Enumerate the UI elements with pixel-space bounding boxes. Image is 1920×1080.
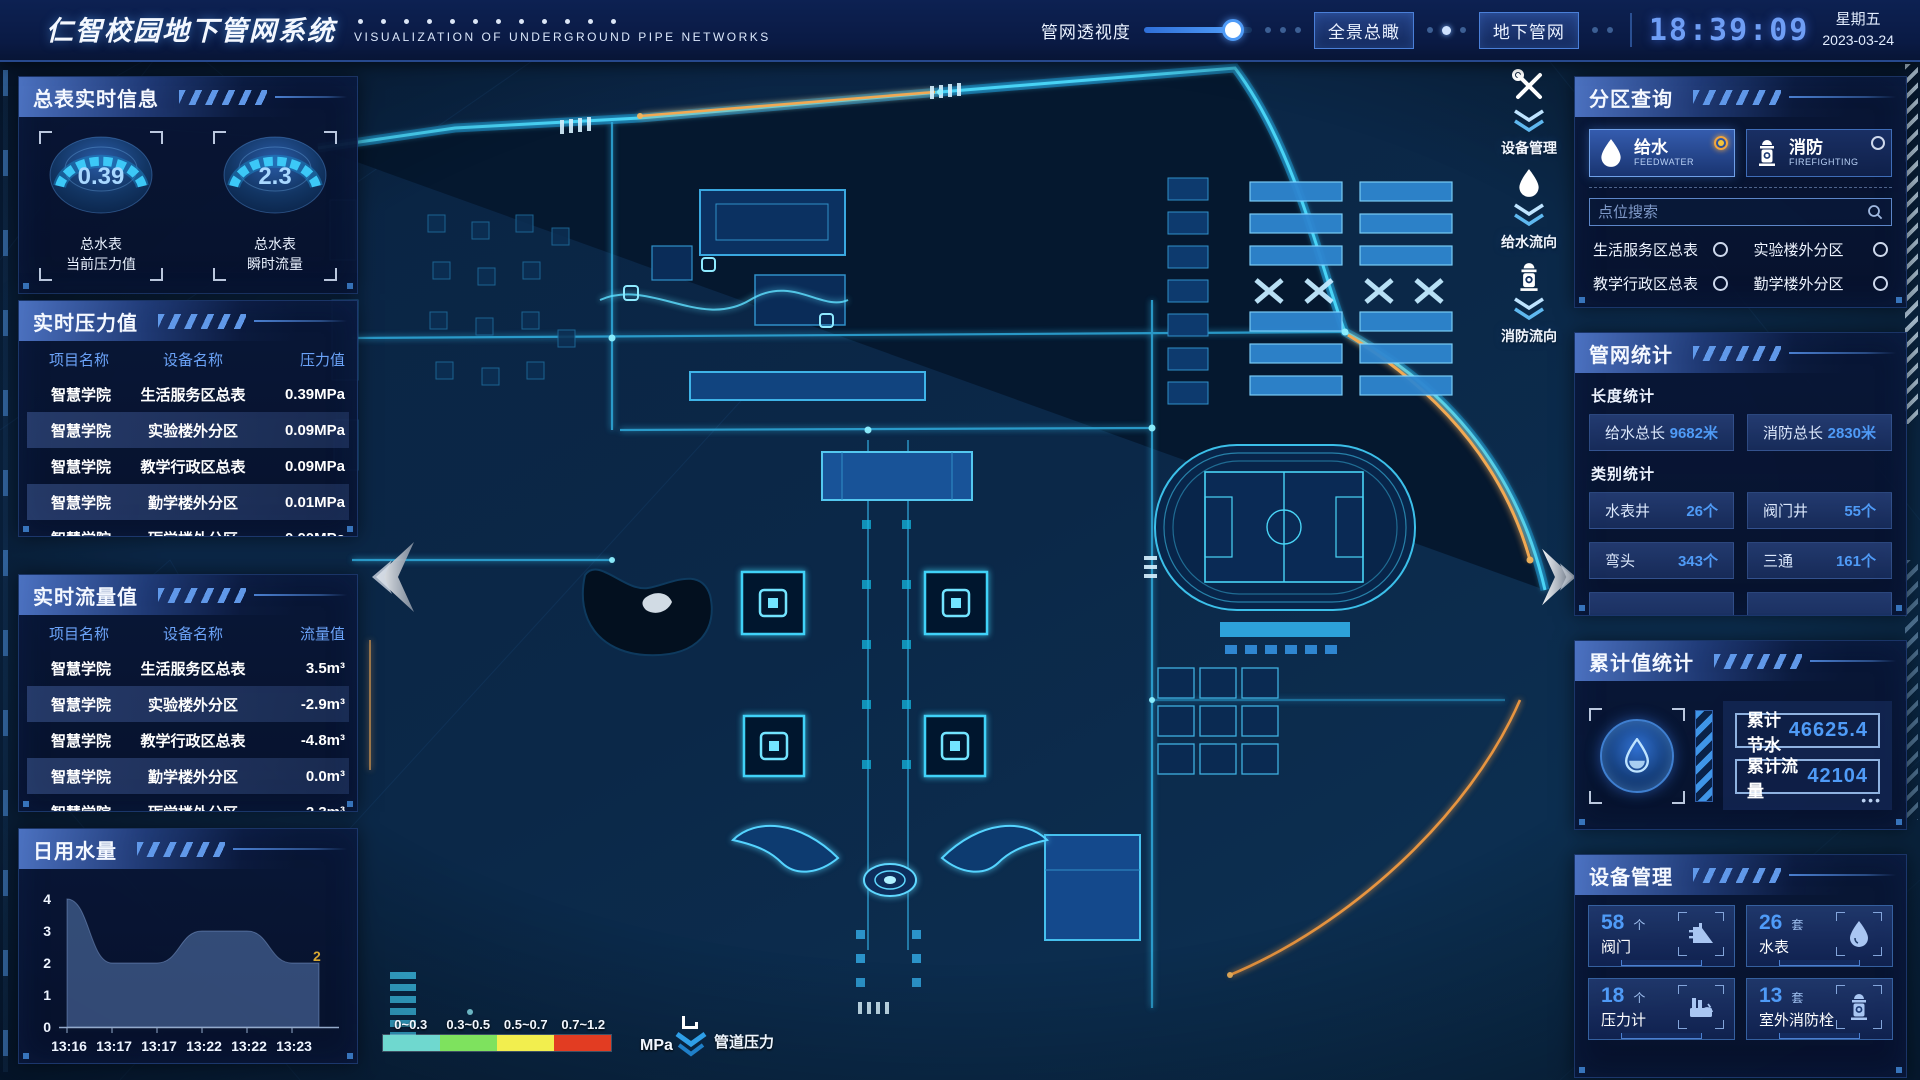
stat-chip-partial	[1589, 592, 1734, 616]
float-device-management[interactable]: 设备管理	[1496, 66, 1562, 158]
table-row: 智慧学院生活服务区总表3.5m³	[27, 650, 349, 686]
stat-chip: 弯头343个	[1589, 542, 1734, 579]
float-label: 消防流向	[1496, 326, 1562, 346]
svg-text:13:17: 13:17	[96, 1038, 132, 1054]
transparency-label: 管网透视度	[1041, 18, 1131, 43]
feedwater-radio[interactable]	[1714, 136, 1728, 150]
radio-icon[interactable]	[1873, 276, 1888, 291]
gauge-label: 总水表 当前压力值	[39, 234, 163, 275]
float-feedwater-flow[interactable]: 给水流向	[1496, 168, 1562, 252]
svg-text:3: 3	[43, 923, 51, 939]
panel-pressure: 实时压力值 项目名称设备名称压力值 智慧学院生活服务区总表0.39MPa 智慧学…	[18, 300, 358, 537]
stat-chip: 消防总长2830米	[1747, 414, 1892, 451]
slashes-decor	[158, 588, 246, 603]
water-drop-icon	[1836, 912, 1882, 956]
panel-cumulative: 累计值统计 累计节水 46625.4 累计流量	[1574, 640, 1907, 830]
pressure-legend: 0~0.3 0.3~0.5 0.5~0.7 0.7~1.2	[382, 1017, 612, 1052]
stat-chip: 给水总长9682米	[1589, 414, 1734, 451]
zone-item[interactable]: 教学行政区总表	[1593, 273, 1728, 294]
firefighting-radio[interactable]	[1871, 136, 1885, 150]
search-icon[interactable]	[1867, 204, 1883, 220]
panel-title: 分区查询	[1589, 83, 1673, 112]
panel-title: 管网统计	[1589, 339, 1673, 368]
legend-color-bar	[382, 1034, 612, 1052]
panel-header: 总表实时信息	[19, 77, 357, 117]
category-stats: 水表井26个 阀门井55个 弯头343个 三通161个	[1575, 492, 1906, 616]
table-row: 智慧学院砺学楼外分区0.00MPa	[27, 520, 349, 537]
app-header: 仁智校园地下管网系统 VISUALIZATION OF UNDERGROUND …	[0, 0, 1920, 62]
wrench-icon	[1509, 66, 1549, 104]
daily-usage-chart: 4 3 2 1 0 13:16 13:17 13:17 13:22 13:22 …	[23, 875, 353, 1063]
header-separator	[1630, 13, 1632, 47]
table-row: 智慧学院勤学楼外分区0.0m³	[27, 758, 349, 794]
zone-item[interactable]: 生活服务区总表	[1593, 239, 1728, 260]
zone-item[interactable]: 宿舍区泵房	[1754, 307, 1889, 308]
app-title: 仁智校园地下管网系统	[46, 9, 336, 48]
water-drop-icon	[1598, 138, 1624, 168]
table-row: 智慧学院教学行政区总表0.09MPa	[27, 448, 349, 484]
cumulative-flow-row: 累计流量 42104	[1735, 759, 1880, 794]
chevron-down-icon	[1511, 297, 1547, 321]
daily-area-path	[67, 899, 319, 1027]
panel-master-info: 总表实时信息 0.39 总	[18, 76, 358, 294]
left-edge-decor	[3, 70, 8, 1072]
radio-icon[interactable]	[1873, 242, 1888, 257]
svg-text:13:22: 13:22	[186, 1038, 222, 1054]
svg-text:2: 2	[43, 955, 51, 971]
app-subtitle: VISUALIZATION OF UNDERGROUND PIPE NETWOR…	[354, 30, 771, 44]
flow-table: 智慧学院生活服务区总表3.5m³ 智慧学院实验楼外分区-2.9m³ 智慧学院教学…	[19, 650, 357, 812]
panel-header: 实时流量值	[19, 575, 357, 615]
underground-button[interactable]: 地下管网	[1479, 12, 1579, 49]
gauge-flow: 2.3 总水表 瞬时流量	[213, 131, 337, 281]
panel-device-mgmt: 设备管理 58个 阀门 26套 水表	[1574, 854, 1907, 1078]
svg-text:13:22: 13:22	[231, 1038, 267, 1054]
panel-title: 累计值统计	[1589, 647, 1694, 676]
stat-chip: 三通161个	[1747, 542, 1892, 579]
stat-chip: 水表井26个	[1589, 492, 1734, 529]
dots-decor	[1592, 27, 1613, 33]
dots-decor	[1427, 26, 1466, 35]
pressure-table-header: 项目名称设备名称压力值	[19, 341, 357, 376]
svg-text:0: 0	[43, 1019, 51, 1035]
radio-icon[interactable]	[1713, 276, 1728, 291]
device-card-valve[interactable]: 58个 阀门	[1588, 905, 1735, 967]
search-input[interactable]	[1598, 204, 1867, 221]
float-label: 给水流向	[1496, 232, 1562, 252]
chevron-down-icon	[1511, 203, 1547, 227]
slashes-decor	[1693, 868, 1781, 883]
gauge-pressure: 0.39 总水表 当前压力值	[39, 131, 163, 281]
svg-text:2.3: 2.3	[258, 163, 291, 190]
panel-pipe-stats: 管网统计 长度统计 给水总长9682米 消防总长2830米 类别统计 水表井26…	[1574, 332, 1907, 616]
dots-decor	[1265, 27, 1301, 33]
panel-header: 分区查询	[1575, 77, 1906, 117]
panel-header: 日用水量	[19, 829, 357, 869]
panel-header: 管网统计	[1575, 333, 1906, 373]
panel-title: 设备管理	[1589, 861, 1673, 890]
svg-text:13:23: 13:23	[276, 1038, 312, 1054]
table-row: 智慧学院实验楼外分区0.09MPa	[27, 412, 349, 448]
dashboard-root: 仁智校园地下管网系统 VISUALIZATION OF UNDERGROUND …	[0, 0, 1920, 1080]
brand: 仁智校园地下管网系统 VISUALIZATION OF UNDERGROUND …	[46, 9, 771, 48]
valve-icon	[1678, 912, 1724, 956]
pressure-table: 智慧学院生活服务区总表0.39MPa 智慧学院实验楼外分区0.09MPa 智慧学…	[19, 376, 357, 537]
slashes-decor	[158, 314, 246, 329]
gauge-label: 总水表 瞬时流量	[213, 234, 337, 275]
zone-item[interactable]: 勤学楼外分区	[1754, 273, 1889, 294]
table-row: 智慧学院生活服务区总表0.39MPa	[27, 376, 349, 412]
length-stats: 给水总长9682米 消防总长2830米	[1575, 414, 1906, 451]
svg-text:4: 4	[43, 891, 51, 907]
float-fire-flow[interactable]: 消防流向	[1496, 262, 1562, 346]
device-card-meter[interactable]: 26套 水表	[1746, 905, 1893, 967]
table-row: 智慧学院教学行政区总表-4.8m³	[27, 722, 349, 758]
water-badge	[1589, 708, 1685, 804]
table-row: 智慧学院砺学楼外分区2.3m³	[27, 794, 349, 812]
zone-item[interactable]: 砺学楼外分区	[1593, 307, 1728, 308]
weekday: 星期五	[1822, 10, 1894, 30]
svg-text:1: 1	[43, 987, 51, 1003]
chevron-down-icon	[1511, 109, 1547, 133]
device-card-hydrant[interactable]: 13套 室外消防栓	[1746, 978, 1893, 1040]
date: 2023-03-24	[1822, 31, 1894, 50]
chart-end-label: 2	[313, 948, 321, 964]
slashes-decor	[179, 90, 267, 105]
feedwater-toggle[interactable]: 给水 FEEDWATER	[1589, 129, 1735, 177]
stat-chip: 阀门井55个	[1747, 492, 1892, 529]
panel-flow: 实时流量值 项目名称设备名称流量值 智慧学院生活服务区总表3.5m³ 智慧学院实…	[18, 574, 358, 812]
slashes-decor	[1714, 654, 1802, 669]
map-nav-left-arrow[interactable]	[362, 538, 424, 621]
slashes-decor	[137, 842, 225, 857]
device-card-pressure-gauge[interactable]: 18个 压力计	[1588, 978, 1735, 1040]
stripe-decor	[1695, 710, 1713, 802]
zone-item[interactable]: 实验楼外分区	[1754, 239, 1889, 260]
device-grid: 58个 阀门 26套 水表	[1575, 895, 1906, 1040]
firefighting-toggle[interactable]: 消防 FIREFIGHTING	[1746, 129, 1892, 177]
pressure-gauge-icon	[1678, 985, 1724, 1029]
pipe-pressure-label: 管道压力	[714, 1031, 774, 1052]
float-label: 设备管理	[1496, 138, 1562, 158]
hydrant-icon	[1516, 262, 1542, 292]
dashed-divider	[1589, 187, 1892, 188]
panel-header: 设备管理	[1575, 855, 1906, 895]
table-row: 智慧学院勤学楼外分区0.01MPa	[27, 484, 349, 520]
water-drop-icon	[1622, 738, 1652, 774]
pipe-pressure-marker[interactable]	[668, 1014, 714, 1063]
category-stats-title: 类别统计	[1575, 451, 1906, 492]
slashes-decor	[1693, 346, 1781, 361]
hydrant-icon	[1836, 985, 1882, 1029]
search-box[interactable]	[1589, 198, 1892, 226]
stat-chip-partial	[1747, 592, 1892, 616]
zone-list: 生活服务区总表 实验楼外分区 教学行政区总表 勤学楼外分区 砺学楼外分区 宿舍区…	[1575, 226, 1906, 308]
svg-text:13:17: 13:17	[141, 1038, 177, 1054]
slashes-decor	[1693, 90, 1781, 105]
svg-text:13:16: 13:16	[51, 1038, 87, 1054]
panel-zone-query: 分区查询 给水 FEEDWATER 消防	[1574, 76, 1907, 308]
panel-header: 累计值统计	[1575, 641, 1906, 681]
panel-title: 总表实时信息	[33, 83, 159, 112]
gauge-svg: 2.3	[215, 131, 335, 227]
panel-title: 实时压力值	[33, 307, 138, 336]
hydrant-icon	[1755, 139, 1779, 167]
dots-decor: •••	[1861, 792, 1882, 808]
table-row: 智慧学院实验楼外分区-2.9m³	[27, 686, 349, 722]
radio-icon[interactable]	[1713, 242, 1728, 257]
brand-dots-decor	[354, 19, 771, 24]
clock: 18:39:09	[1649, 13, 1810, 48]
water-drop-icon	[1516, 168, 1542, 198]
length-stats-title: 长度统计	[1575, 373, 1906, 414]
gauge-svg: 0.39	[41, 131, 161, 227]
panel-title: 实时流量值	[33, 581, 138, 610]
panel-daily-usage: 日用水量 4 3 2 1 0 13:16	[18, 828, 358, 1064]
panel-header: 实时压力值	[19, 301, 357, 341]
slider-thumb[interactable]	[1222, 19, 1244, 41]
flow-table-header: 项目名称设备名称流量值	[19, 615, 357, 650]
date-block: 星期五 2023-03-24	[1822, 10, 1900, 49]
overview-button[interactable]: 全景总瞰	[1314, 12, 1414, 49]
transparency-slider[interactable]	[1144, 19, 1252, 41]
panel-title: 日用水量	[33, 835, 117, 864]
cumulative-saving-row: 累计节水 46625.4	[1735, 713, 1880, 748]
svg-text:0.39: 0.39	[78, 163, 125, 190]
